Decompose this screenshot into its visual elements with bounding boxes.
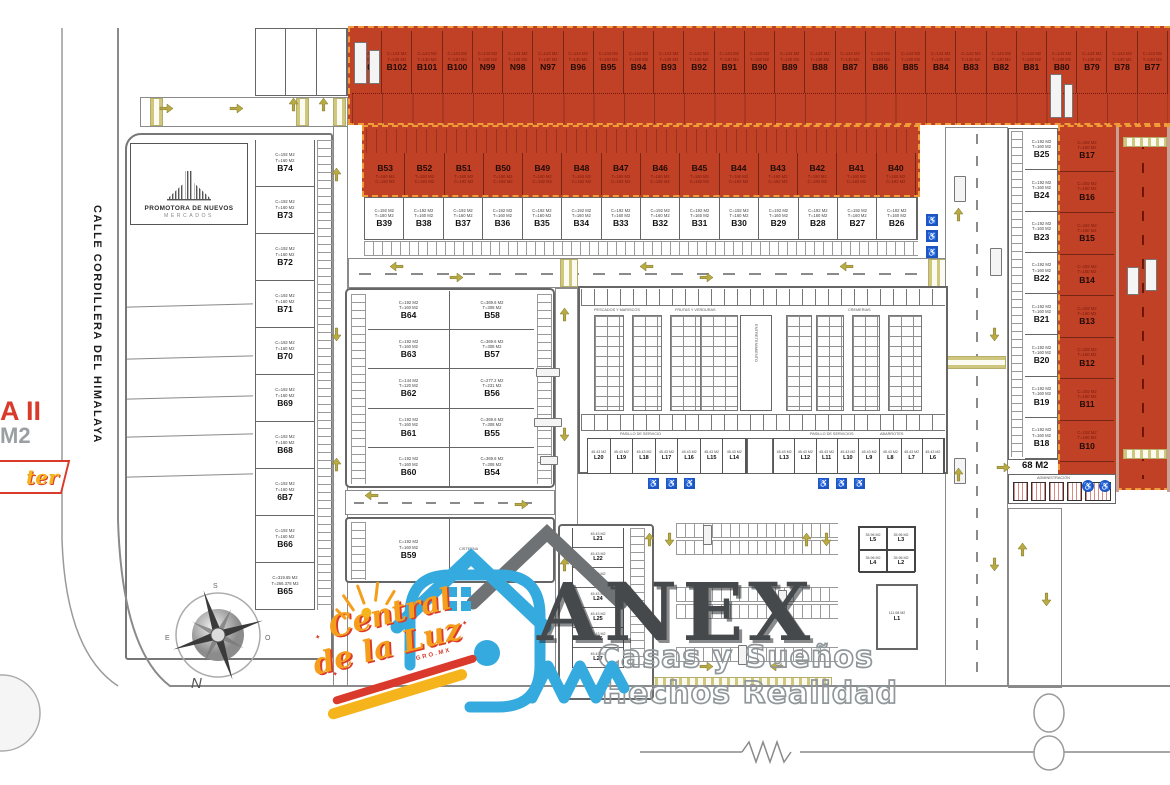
crosswalk	[150, 98, 163, 126]
lot-number: B77	[1145, 62, 1161, 73]
crosswalk	[1123, 137, 1167, 147]
lot-cell: C=369.6 M2 T=308 M2 B55	[450, 409, 534, 448]
lot-number: B101	[417, 62, 437, 73]
truck	[534, 418, 562, 427]
local-number: L1	[894, 616, 900, 623]
locales-row-right: 45.43 M2 L13 45.43 M2 L12 45.43 M2 L11 4…	[773, 438, 945, 474]
right-white-column: C=192 M2 T=160 M2 B25 C=192 M2 T=160 M2 …	[1025, 129, 1058, 459]
lot-number: B95	[601, 62, 617, 73]
local-number: L18	[639, 455, 648, 462]
lot-cell: C=192 M2 T=160 M2 B12	[1060, 338, 1114, 380]
promotora-line2: MERCADOS	[164, 213, 214, 219]
lot-number: B17	[1079, 150, 1095, 161]
car	[954, 176, 966, 202]
parking-stalls-strip	[351, 522, 366, 580]
lot-cell: C=369.6 M2 T=308 M2 B57	[450, 330, 534, 369]
road-far-right	[1116, 127, 1170, 492]
red-zone-right: C=192 M2 T=160 M2 B17 C=192 M2 T=160 M2 …	[1058, 125, 1170, 490]
stall-bank	[594, 315, 624, 411]
lot-area-c: C=192 M2	[611, 179, 630, 184]
lot-cell: C=192 M2 T=160 M2 B13	[1060, 296, 1114, 338]
local-number: L14	[730, 455, 739, 462]
lot-cell: C=192 M2 T=160 M2 B32	[641, 198, 680, 239]
lot-area-c: C=192 M2	[650, 179, 669, 184]
lot-number: B30	[731, 218, 747, 229]
market-building: PESCADOS Y MARISCOS FRUTAS Y VERDURAS CR…	[578, 286, 948, 474]
lot-cell: C=192 M2 T=160 M2 B37	[444, 198, 483, 239]
lot-number: B46	[652, 163, 668, 174]
anex-zigzag-icon	[528, 648, 658, 708]
lot-cell: C=144 M2 T=130 M2 B91	[715, 31, 745, 93]
lot-cell: C=192 M2 T=160 M2 B74	[256, 140, 314, 187]
handicap-stall-icon: ♿	[836, 478, 847, 489]
lot-area-c: C=192 M2	[886, 179, 905, 184]
local-cell: 35.96 M2 L5	[859, 527, 887, 550]
atrium-label: ENTRETENIMIENTO	[754, 324, 759, 362]
lot-number: B12	[1079, 358, 1095, 369]
local-number: L8	[887, 455, 893, 462]
handicap-sign-icon: ♿	[1082, 480, 1094, 492]
promotora-logo-box: PROMOTORA DE NUEVOS MERCADOS	[130, 143, 248, 225]
lot-number: B24	[1034, 190, 1050, 201]
lot-cell: C=144 M2 T=130 M2 B82	[987, 31, 1017, 93]
lot-number: B88	[812, 62, 828, 73]
compass-e: E	[165, 635, 170, 642]
lot-cell: C=192 M2 T=160 M2 B14	[1060, 255, 1114, 297]
stall-bank	[888, 315, 922, 411]
lot-cell: C=144 M2 T=130 M2 B83	[956, 31, 986, 93]
lot-number: B81	[1024, 62, 1040, 73]
right-white-block: C=192 M2 T=160 M2 B25 C=192 M2 T=160 M2 …	[1008, 128, 1058, 460]
compass-rose-icon: S O E N	[163, 580, 273, 690]
lot-number: B40	[888, 163, 904, 174]
lot-cell: C=192 M2 T=160 M2 B20	[1025, 335, 1058, 376]
lot-cell: C=192 M2 T=160 M2 B19	[1025, 377, 1058, 418]
lot-number: B48	[574, 163, 590, 174]
lot-number: B28	[810, 218, 826, 229]
lot-number: B57	[484, 349, 500, 360]
zone-label: FRUTAS Y VERDURAS	[675, 308, 716, 312]
badge-script-text: ter	[26, 465, 59, 489]
lot-number: B41	[849, 163, 865, 174]
lot-number: B52	[417, 163, 433, 174]
lot-cell: C=192 M2 T=160 M2 B63	[368, 330, 449, 369]
promotora-building-icon	[166, 169, 212, 205]
lot-cell: C=144 M2 T=130 M2 B102	[382, 31, 412, 93]
lot-cell: C=144 M2 T=130 M2 B92	[684, 31, 714, 93]
corridor	[747, 438, 773, 474]
lot-number: B33	[613, 218, 629, 229]
local-number: L19	[617, 455, 626, 462]
lot-number: B79	[1084, 62, 1100, 73]
lot-cell: B41 T=160 M2 C=192 M2	[837, 153, 876, 195]
lot-cell: C=192 M2 T=160 M2 B69	[256, 375, 314, 422]
lot-number: B102	[387, 62, 407, 73]
lot-cell: B45 T=160 M2 C=192 M2	[680, 153, 719, 195]
lot-cell: C=192 M2 T=160 M2 B11	[1060, 379, 1114, 421]
local-number: L5	[870, 537, 876, 544]
top-narrow-lots	[255, 28, 348, 96]
local-cell: 45.43 M2 L15	[701, 439, 724, 473]
lot-number: B83	[963, 62, 979, 73]
truck	[1064, 84, 1073, 118]
lot-number: B10	[1079, 441, 1095, 452]
perimeter-stalls	[581, 414, 945, 431]
admin-room	[1031, 482, 1046, 501]
lot-cell: C=192 M2 T=160 M2 B39	[365, 198, 404, 239]
road-bottom-right	[1008, 508, 1062, 688]
local-cell: 45.43 M2 L7	[902, 439, 923, 473]
crosswalk	[947, 356, 1006, 369]
star-decoration: ✦	[314, 633, 322, 642]
lot-number: B31	[692, 218, 708, 229]
lot-number: B80	[1054, 62, 1070, 73]
lot-cell: C=192 M2 T=160 M2 B71	[256, 281, 314, 328]
parking-row	[676, 523, 838, 538]
lot-cell	[256, 29, 286, 95]
lot-cell: C=369.6 M2 T=308 M2 B54	[450, 448, 534, 487]
local-number: L10	[843, 455, 852, 462]
lot-area-c: C=192 M2	[415, 179, 434, 184]
lot-number: N99	[480, 62, 496, 73]
lot-number: B51	[456, 163, 472, 174]
lot-number: B87	[842, 62, 858, 73]
lot-cell: B46 T=160 M2 C=192 M2	[641, 153, 680, 195]
lot-area-c: C=192 M2	[808, 179, 827, 184]
car	[990, 248, 1002, 276]
lot-number: B78	[1114, 62, 1130, 73]
lot-cell: C=144 M2 T=130 M2 B95	[594, 31, 624, 93]
lot-number: B35	[534, 218, 550, 229]
lot-number: B60	[401, 467, 417, 478]
lot-area-c: C=192 M2	[454, 179, 473, 184]
lot-number: B70	[277, 351, 293, 362]
lot-number: B36	[495, 218, 511, 229]
handicap-sign-icon: ♿	[926, 246, 938, 258]
admin-area-label: 68 M2	[1022, 460, 1048, 471]
lot-cell: B42 T=160 M2 C=192 M2	[798, 153, 837, 195]
handicap-stall-icon: ♿	[666, 478, 677, 489]
mid-right-column: C=369.6 M2 T=308 M2 B58 C=369.6 M2 T=308…	[450, 291, 534, 487]
lot-cell: C=144 M2 T=130 M2 B86	[866, 31, 896, 93]
lot-number: B54	[484, 467, 500, 478]
local-number: L20	[594, 455, 603, 462]
lot-number: B63	[401, 349, 417, 360]
local-cell: 45.43 M2 L18	[633, 439, 656, 473]
lot-cell: B48 T=160 M2 C=192 M2	[562, 153, 601, 195]
lot-number: B65	[277, 586, 293, 597]
crosswalk	[928, 259, 946, 287]
lot-cell: C=144 M2 T=120 M2 B62	[368, 369, 449, 408]
lot-cell: B43 T=160 M2 C=192 M2	[759, 153, 798, 195]
lot-cell: C=192 M2 T=160 M2 B34	[562, 198, 601, 239]
parking-stalls-strip	[317, 140, 333, 610]
lot-number: B13	[1079, 316, 1095, 327]
car	[536, 368, 560, 377]
local-cell: 45.43 M2 L19	[611, 439, 634, 473]
lot-cell: C=144 M2 T=130 M2 B87	[836, 31, 866, 93]
local-cell: 45.43 M2 L8	[880, 439, 901, 473]
lot-number: N97	[540, 62, 556, 73]
compass-o: O	[265, 635, 271, 642]
lot-number: B34	[574, 218, 590, 229]
lane-dashes	[359, 273, 999, 275]
parcel-divider	[127, 303, 253, 307]
lot-number: B62	[401, 388, 417, 399]
lot-number: B15	[1079, 233, 1095, 244]
lot-cell: C=192 M2 T=160 M2 B33	[602, 198, 641, 239]
lot-number: B73	[277, 210, 293, 221]
lot-cell: C=192 M2 T=160 M2 B31	[680, 198, 719, 239]
lot-number: B14	[1079, 275, 1095, 286]
lot-cell: C=192 M2 T=160 M2 B15	[1060, 213, 1114, 255]
parcel-divider	[127, 395, 253, 399]
local-number: L3	[898, 537, 904, 544]
stall-bank	[816, 315, 844, 411]
local-l1-cell: 111.08 M2 L1	[876, 584, 918, 650]
lot-number: B92	[691, 62, 707, 73]
car	[703, 525, 712, 545]
red-zone-top: C=144 M2 T=130 M2 B103 C=144 M2 T=130 M2…	[348, 26, 1170, 125]
promotora-line1: PROMOTORA DE NUEVOS	[145, 205, 234, 212]
local-cell: 45.43 M2 L14	[723, 439, 746, 473]
lot-cell: C=192 M2 T=160 M2 B72	[256, 234, 314, 281]
lot-cell: C=192 M2 T=160 M2 B38	[404, 198, 443, 239]
lot-number: B72	[277, 257, 293, 268]
lot-cell: C=144 M2 T=130 M2 B77	[1138, 31, 1168, 93]
compass-s: S	[213, 583, 218, 590]
handicap-stall-icon: ♿	[818, 478, 829, 489]
lot-number: B84	[933, 62, 949, 73]
parcel-divider	[127, 433, 253, 437]
lot-number: B22	[1034, 273, 1050, 284]
lot-number: B71	[277, 304, 293, 315]
lot-number: B11	[1079, 399, 1094, 410]
right-red-column: C=192 M2 T=160 M2 B17 C=192 M2 T=160 M2 …	[1060, 130, 1114, 462]
lot-cell: B53 T=160 M2 C=192 M2	[366, 153, 405, 195]
lot-cell: B50 T=160 M2 C=192 M2	[484, 153, 523, 195]
lot-cell: C=192 M2 T=160 M2 B16	[1060, 172, 1114, 214]
lot-number: B37	[455, 218, 471, 229]
lot-cell: C=144 M2 T=130 M2 B85	[896, 31, 926, 93]
lot-area-c: C=192 M2	[690, 179, 709, 184]
lot-cell: C=144 M2 T=130 M2 B94	[624, 31, 654, 93]
b53-lot-row: B53 T=160 M2 C=192 M2 B52 T=160 M2 C=192…	[366, 153, 916, 195]
lot-number: B64	[401, 310, 417, 321]
lot-number: B18	[1034, 438, 1050, 449]
local-number: L13	[779, 455, 788, 462]
lot-number: B39	[376, 218, 392, 229]
handicap-sign-icon: ♿	[926, 214, 938, 226]
lot-cell: C=192 M2 T=160 M2 B23	[1025, 212, 1058, 253]
pasillo-label: PASILLO DE SERVICIOS	[810, 432, 854, 436]
lot-cell: C=144 M2 T=130 M2 B90	[745, 31, 775, 93]
lot-cell: C=144 M2 T=130 M2 B79	[1077, 31, 1107, 93]
zone-label: PESCADOS Y MARISCOS	[594, 308, 640, 312]
lot-number: N98	[510, 62, 526, 73]
parking-stalls-strip	[351, 294, 366, 484]
locales-sw-grid: 35.96 M2 L5 35.96 M2 L3 35.96 M2 L4 35.9…	[858, 526, 916, 572]
lot-number: B90	[752, 62, 768, 73]
lot-area-c: C=192 M2	[729, 179, 748, 184]
truck	[1050, 74, 1062, 118]
admin-room	[1067, 482, 1082, 501]
lot-number: B96	[570, 62, 586, 73]
local-number: L12	[801, 455, 810, 462]
lot-number: B66	[277, 539, 293, 550]
lot-cell: C=144 M2 T=130 M2 N98	[503, 31, 533, 93]
truck	[369, 50, 380, 84]
lot-cell: C=192 M2 T=160 M2 B66	[256, 516, 314, 563]
lot-number: B25	[1034, 149, 1050, 160]
local-number: L7	[908, 455, 914, 462]
badge-line2: M2	[0, 425, 110, 447]
lot-cell: C=192 M2 T=160 M2 B18	[1025, 418, 1058, 459]
lot-cell	[317, 29, 347, 95]
local-cell: 35.96 M2 L3	[887, 527, 915, 550]
lot-area-c: C=192 M2	[375, 179, 394, 184]
local-number: L15	[707, 455, 716, 462]
zone-label: ABARROTES	[880, 432, 903, 436]
lot-cell: C=192 M2 T=160 M2 B29	[759, 198, 798, 239]
lot-number: B61	[401, 428, 417, 439]
lot-number: B44	[731, 163, 747, 174]
lot-cell: C=192 M2 T=160 M2 B26	[877, 198, 916, 239]
lane-dashes	[976, 134, 978, 682]
lot-number: 6B7	[277, 492, 293, 503]
local-number: L17	[662, 455, 671, 462]
handicap-stall-icon: ♿	[648, 478, 659, 489]
local-number: L4	[870, 560, 876, 567]
lot-area-c: C=192 M2	[847, 179, 866, 184]
admin-room	[1013, 482, 1028, 501]
anex-wordmark: ANEX	[537, 578, 815, 646]
lot-cell: C=277.2 M2 T=231 M2 B56	[450, 369, 534, 408]
lot-number: B91	[721, 62, 737, 73]
lot-cell: C=144 M2 T=130 M2 B101	[412, 31, 442, 93]
local-cell: 45.43 M2 L12	[795, 439, 816, 473]
site-plan: CALLE CORDILLERA DEL HIMALAYA PROMOTORA …	[0, 0, 1170, 785]
lot-number: B47	[613, 163, 629, 174]
parking-stalls-strip	[364, 241, 918, 256]
lot-number: B49	[534, 163, 550, 174]
lot-number: B56	[484, 388, 500, 399]
lot-cell: C=144 M2 T=130 M2 N97	[533, 31, 563, 93]
lot-cell: C=192 M2 T=160 M2 B70	[256, 328, 314, 375]
mid-left-column: C=192 M2 T=160 M2 B64 C=192 M2 T=160 M2 …	[368, 291, 450, 487]
lot-cell: B40 T=160 M2 C=192 M2	[877, 153, 916, 195]
local-cell: 45.43 M2 L17	[656, 439, 679, 473]
lot-cell: B52 T=160 M2 C=192 M2	[405, 153, 444, 195]
handicap-sign-icon: ♿	[1099, 480, 1111, 492]
parking-stalls-strip	[1011, 131, 1023, 457]
lot-number: B32	[652, 218, 668, 229]
red-zone-b53: B53 T=160 M2 C=192 M2 B52 T=160 M2 C=192…	[362, 125, 920, 197]
lot-cell: B44 T=160 M2 C=192 M2	[720, 153, 759, 195]
lot-cell: C=144 M2 T=130 M2 B84	[926, 31, 956, 93]
lot-cell	[286, 29, 316, 95]
lot-number: B93	[661, 62, 677, 73]
local-cell: 35.96 M2 L4	[859, 550, 887, 573]
parking-row	[676, 540, 838, 555]
handicap-stall-icon: ♿	[854, 478, 865, 489]
lot-cell: C=192 M2 T=160 M2 6B7	[256, 469, 314, 516]
lot-number: B86	[873, 62, 889, 73]
truck	[1127, 267, 1139, 295]
lot-cell: C=192 M2 T=160 M2 B21	[1025, 294, 1058, 335]
lot-number: B53	[377, 163, 393, 174]
lot-cell: C=192 M2 T=160 M2 B28	[799, 198, 838, 239]
stall-bank	[852, 315, 880, 411]
badge-script-box: ter	[0, 460, 70, 494]
badge-line1: A II	[0, 398, 110, 425]
lot-number: B69	[277, 398, 293, 409]
lot-cell: C=192 M2 T=160 M2 B22	[1025, 253, 1058, 294]
local-cell: 45.43 M2 L20	[588, 439, 611, 473]
lot-cell: C=144 M2 T=130 M2 N99	[473, 31, 503, 93]
lot-number: B19	[1034, 397, 1050, 408]
lot-number: B38	[416, 218, 432, 229]
local-cell: 45.43 M2 L9	[859, 439, 880, 473]
lot-number: B82	[993, 62, 1009, 73]
lot-depth-strip	[352, 93, 1168, 124]
lot-cell: C=369.6 M2 T=308 M2 B58	[450, 291, 534, 330]
lot-number: B100	[447, 62, 467, 73]
lot-number: B43	[770, 163, 786, 174]
lot-cell: C=192 M2 T=160 M2 B25	[1025, 129, 1058, 170]
lot-area-c: C=192 M2	[533, 179, 552, 184]
road-top-left	[140, 97, 348, 127]
lot-cell: C=192 M2 T=160 M2 B17	[1060, 130, 1114, 172]
crosswalk	[296, 98, 309, 126]
lot-area-c: C=192 M2	[493, 179, 512, 184]
lot-cell: C=192 M2 T=160 M2 B60	[368, 448, 449, 487]
local-cell: 45.43 M2 L16	[678, 439, 701, 473]
pasillo-label: PASILLO DE SERVICIO	[620, 432, 661, 436]
lot-number: B55	[484, 428, 500, 439]
crosswalk	[1123, 449, 1167, 459]
local-cell: 35.96 M2 L2	[887, 550, 915, 573]
handicap-stall-icon: ♿	[684, 478, 695, 489]
car	[540, 456, 558, 465]
lot-cell: C=192 M2 T=160 M2 B35	[523, 198, 562, 239]
lot-cell: B51 T=160 M2 C=192 M2	[445, 153, 484, 195]
stall-bank	[700, 315, 738, 411]
stall-bank	[632, 315, 662, 411]
lot-cell: C=144 M2 T=130 M2 B78	[1107, 31, 1137, 93]
lot-number: B42	[809, 163, 825, 174]
lot-cell: C=192 M2 T=160 M2 B24	[1025, 170, 1058, 211]
lot-number: B16	[1079, 192, 1095, 203]
parcel-divider	[127, 355, 253, 359]
lot-cell: C=144 M2 T=130 M2 B100	[443, 31, 473, 93]
atrium: ENTRETENIMIENTO	[740, 315, 772, 411]
lot-cell: C=192 M2 T=160 M2 B30	[720, 198, 759, 239]
local-cell: 45.43 M2 L6	[923, 439, 944, 473]
stall-bank	[786, 315, 812, 411]
handicap-sign-icon: ♿	[926, 230, 938, 242]
local-cell: 45.43 M2 L13	[774, 439, 795, 473]
etapa-badge: A II M2 ter	[0, 398, 110, 518]
locales-row-left: 45.43 M2 L20 45.43 M2 L19 45.43 M2 L18 4…	[587, 438, 747, 474]
lot-number: B68	[277, 445, 293, 456]
lane-dashes	[354, 502, 546, 504]
lot-cell: C=192 M2 T=160 M2 B10	[1060, 421, 1114, 463]
lot-cell: C=192 M2 T=160 M2 B68	[256, 422, 314, 469]
local-cell: 45.43 M2 L10	[838, 439, 859, 473]
lot-number: B27	[849, 218, 865, 229]
lot-cell: C=144 M2 T=130 M2 B88	[805, 31, 835, 93]
